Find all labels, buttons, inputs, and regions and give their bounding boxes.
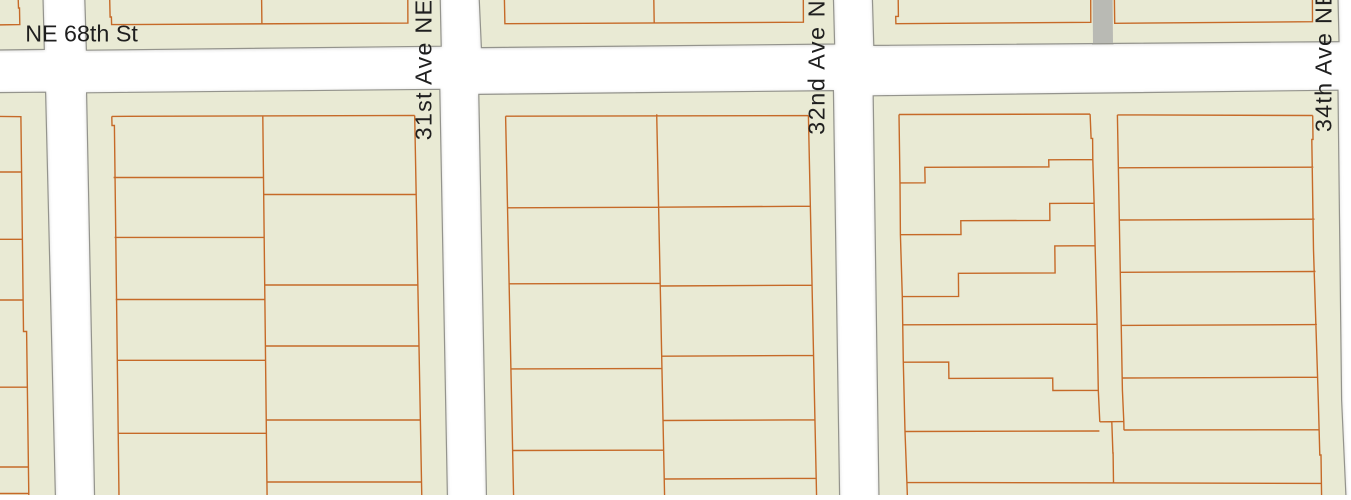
svg-text:34th Ave NE: 34th Ave NE	[1311, 0, 1337, 132]
svg-text:31st Ave NE: 31st Ave NE	[411, 0, 437, 140]
svg-text:32nd Ave NE: 32nd Ave NE	[803, 0, 829, 135]
svg-text:NE 68th St: NE 68th St	[25, 21, 138, 47]
